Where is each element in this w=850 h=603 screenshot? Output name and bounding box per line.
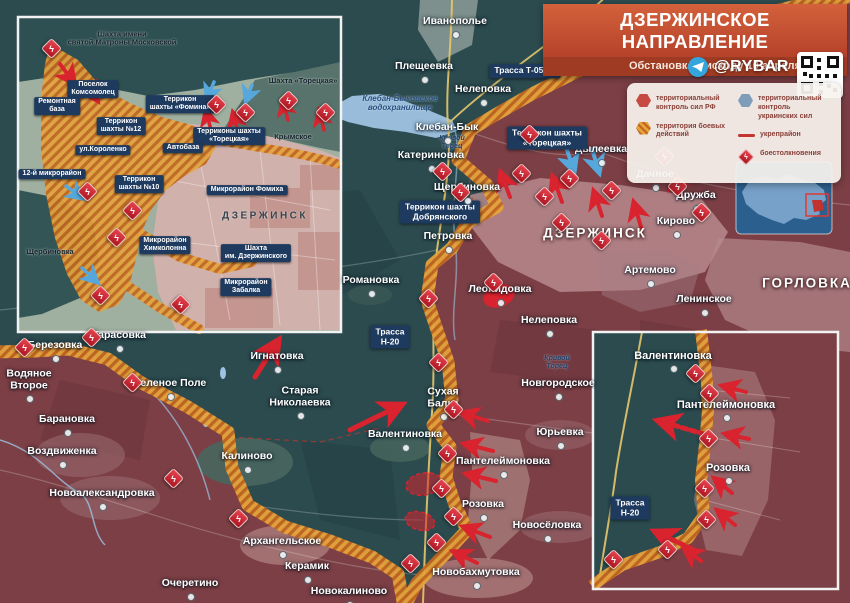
- legend-item-combat-zone: территория боевых действий: [636, 122, 730, 141]
- telegram-icon: [688, 57, 708, 77]
- fortified-line-icon: [738, 134, 755, 137]
- channel-handle: @RYBAR: [714, 58, 789, 76]
- ua-control-icon: [738, 94, 753, 107]
- map-canvas: ИванопольеПлещеевкаНелеповкаКлебан-БыкКа…: [0, 0, 850, 603]
- legend: территориальный контроль сил РФ территор…: [627, 83, 841, 183]
- ru-control-icon: [636, 94, 651, 107]
- legend-item-ua-control: территориальный контроль украинских сил: [738, 94, 832, 121]
- page-title: ДЗЕРЖИНСКОЕ НАПРАВЛЕНИЕ: [543, 4, 847, 57]
- legend-item-ru-control: территориальный контроль сил РФ: [636, 94, 730, 113]
- legend-item-clashes: ϟ боестолкновения: [738, 149, 832, 163]
- inset-city-map: [18, 17, 341, 332]
- inset-southeast-map: [592, 330, 838, 589]
- legend-item-fortified-area: укрепрайон: [738, 130, 832, 140]
- branding: @RYBAR: [688, 57, 789, 77]
- clash-legend-icon: ϟ: [738, 149, 755, 166]
- combat-zone-icon: [636, 122, 651, 135]
